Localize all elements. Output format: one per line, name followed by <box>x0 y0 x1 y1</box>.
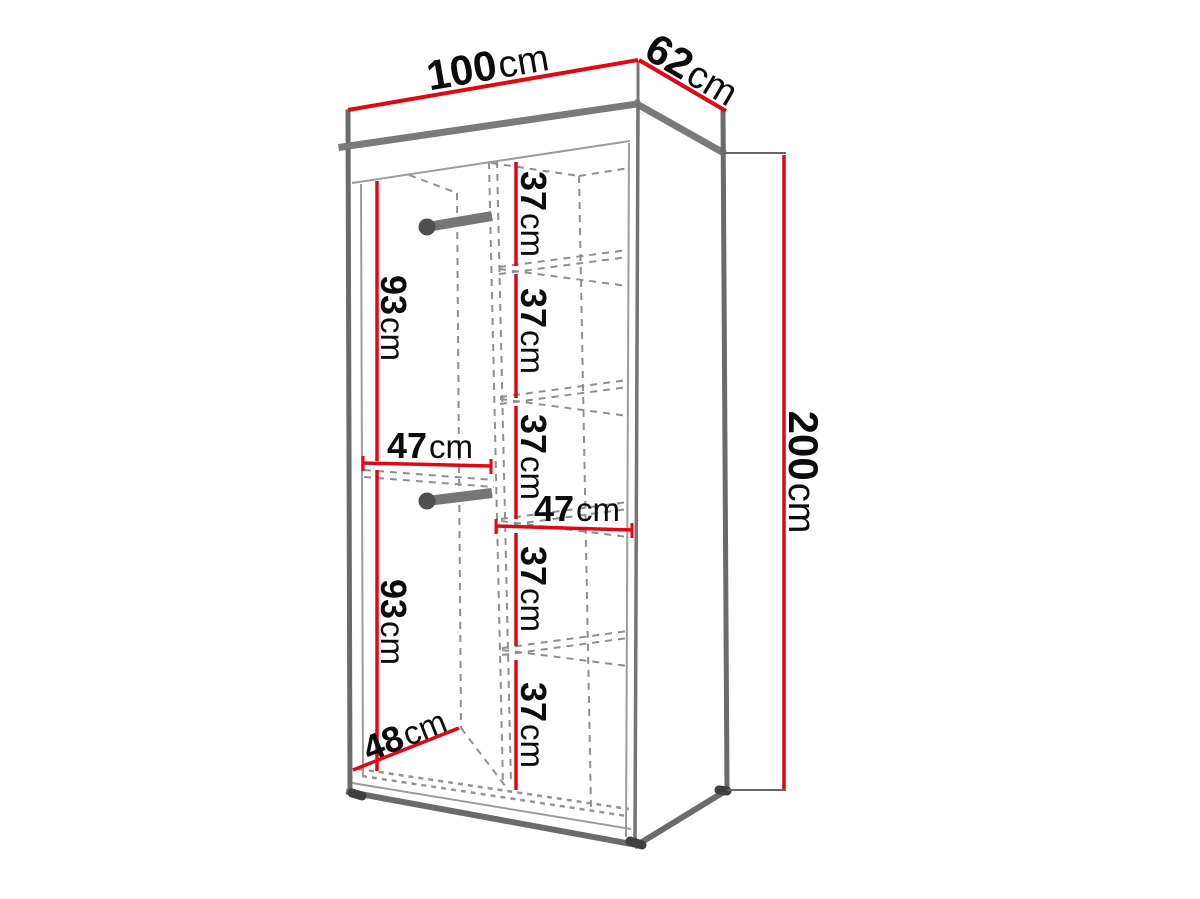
shelf-edge-line <box>500 380 628 397</box>
interior-dashed-lines <box>364 161 629 807</box>
floor-back-edge <box>461 728 506 787</box>
dim-right-section-width-label: 47cm <box>534 488 620 529</box>
hanging-rod-top <box>419 216 493 236</box>
rod-end-cap <box>419 493 436 510</box>
dim-hanging-bottom-label: 93cm <box>373 579 414 665</box>
rod-bar <box>427 216 492 227</box>
rod-end-cap <box>419 219 436 236</box>
right-front-stile-edge <box>635 105 638 842</box>
shelf-edge-line <box>502 650 628 666</box>
dim-shelf-spacing-label: 37cm <box>513 682 554 768</box>
foot-back-right <box>719 790 727 791</box>
dim-height-label: 200cm <box>780 411 827 534</box>
feet <box>352 790 727 845</box>
wardrobe-dimension-diagram: 100cm 62cm 200cm 93cm 93cm 37cm 37cm 37c… <box>0 0 1200 899</box>
top-panel-front-edge <box>342 104 637 147</box>
hanging-rod-bottom <box>419 493 493 510</box>
dim-shelf-spacing-label: 37cm <box>513 171 554 257</box>
dim-hanging-top-label: 93cm <box>373 275 414 361</box>
extension-ticks <box>724 153 786 790</box>
foot-front-right <box>630 841 642 845</box>
rod-bar <box>427 493 492 501</box>
top-panel-side-edge <box>637 104 722 152</box>
ceiling-back-edge <box>579 168 629 176</box>
foot-front-left <box>352 793 362 796</box>
plinth-top-edge <box>352 783 631 829</box>
dim-depth-label: 62cm <box>638 24 748 115</box>
dim-shelf-spacing-label: 37cm <box>513 288 554 374</box>
diagram-canvas: 100cm 62cm 200cm 93cm 93cm 37cm 37cm 37c… <box>0 0 1200 899</box>
shelf-edge-line <box>499 269 628 286</box>
bottom-side-edge <box>637 790 727 845</box>
bottom-front-edge <box>349 792 637 845</box>
inner-right-wall-edge <box>626 143 629 837</box>
floor-dashed-rows <box>359 769 629 816</box>
inner-left-wall-edge <box>361 184 363 777</box>
floor-front-edge <box>362 776 627 816</box>
dim-width-label: 100cm <box>423 32 552 99</box>
ceiling-back-edge <box>409 175 457 193</box>
dim-shelf-spacing-label: 37cm <box>513 546 554 632</box>
shelf-edge-line <box>502 631 628 648</box>
partition-front-edge <box>497 161 511 785</box>
dim-interior-depth-label: 48cm <box>357 699 452 769</box>
back-right-edge <box>723 113 727 790</box>
interior-ceiling-edge <box>352 141 630 183</box>
left-front-edge <box>348 112 350 791</box>
dim-left-section-width-label: 47cm <box>387 425 473 466</box>
